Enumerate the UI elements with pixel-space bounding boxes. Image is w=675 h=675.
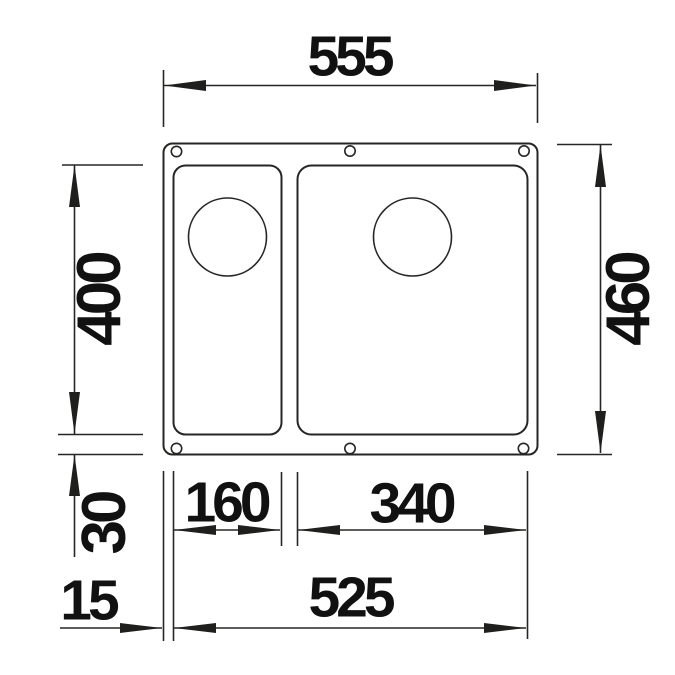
arrowhead-right xyxy=(484,525,526,535)
arrowhead-down xyxy=(69,392,80,434)
arrowhead-right xyxy=(494,80,536,91)
large-bowl-drain-hole xyxy=(374,198,452,276)
mounting-hole-bottom-right xyxy=(518,443,528,453)
arrowhead-left xyxy=(298,525,340,535)
dim-label-large-bowl-width: 340 xyxy=(369,476,452,533)
mounting-hole-top-center xyxy=(345,146,355,156)
arrowhead-left xyxy=(174,623,216,633)
mounting-hole-bottom-left xyxy=(171,443,181,453)
dim-label-bowls-overall: 525 xyxy=(308,570,391,627)
dim-label-overall-width: 555 xyxy=(307,29,390,86)
large-bowl xyxy=(298,166,528,435)
arrowhead-right xyxy=(484,623,526,633)
arrowhead-down xyxy=(595,411,606,453)
dim-label-left-rim-offset: 15 xyxy=(60,573,115,630)
dim-label-bowl-depth: 400 xyxy=(69,254,131,345)
small-bowl xyxy=(174,166,282,435)
technical-drawing-canvas: 555 460 400 30 160 340 525 15 xyxy=(0,0,675,675)
dim-label-overall-depth: 460 xyxy=(598,254,660,345)
arrowhead-up xyxy=(69,455,80,497)
small-bowl-edge xyxy=(174,166,282,435)
arrowhead-up xyxy=(69,165,80,207)
sink-outline xyxy=(164,144,538,455)
mounting-hole-bottom-center xyxy=(345,443,355,453)
dim-label-small-bowl-width: 160 xyxy=(184,475,267,532)
sink-outer-edge xyxy=(164,144,538,455)
mounting-hole-top-right xyxy=(519,146,529,156)
mounting-hole-top-left xyxy=(171,146,181,156)
arrowhead-right xyxy=(120,623,162,633)
arrowhead-up xyxy=(595,145,606,187)
arrowhead-left xyxy=(164,80,206,91)
dim-label-rim-to-bowl-bottom: 30 xyxy=(74,494,136,555)
small-bowl-drain-hole xyxy=(189,198,267,276)
large-bowl-edge xyxy=(298,166,528,435)
